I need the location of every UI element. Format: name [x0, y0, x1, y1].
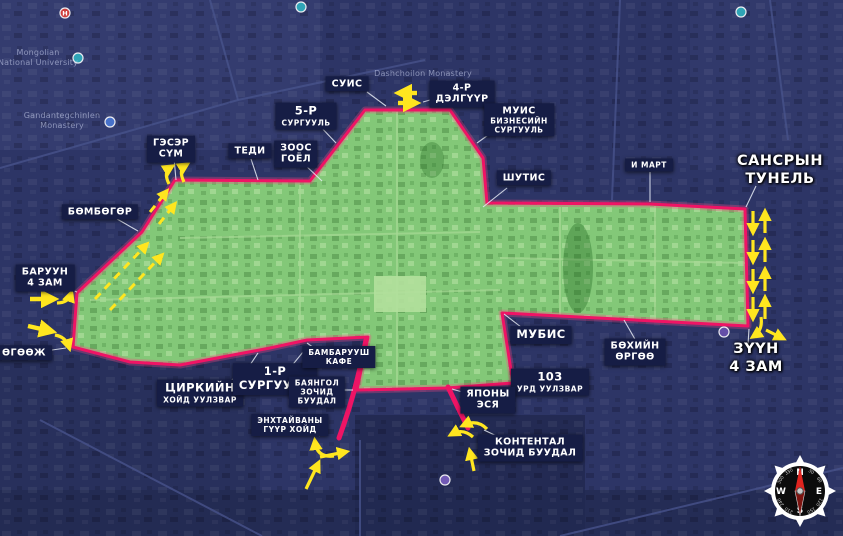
map-pin [73, 53, 83, 63]
map-pin-letter: H [62, 9, 67, 17]
map-pin [105, 117, 115, 127]
map-canvas: H NESW3060120150210240300330 [0, 0, 843, 536]
map-pin [719, 327, 729, 337]
compass-cardinal-W: W [776, 487, 786, 497]
compass-cardinal-E: E [816, 487, 822, 497]
central-square [374, 276, 426, 312]
map-pin [736, 7, 746, 17]
compass-pivot [797, 488, 803, 494]
map-pin [296, 2, 306, 12]
map-pin [440, 475, 450, 485]
satellite-map: H NESW3060120150210240300330 СУИС4-РДЭЛГ… [0, 0, 843, 536]
compass-rose: NESW3060120150210240300330 [764, 455, 836, 527]
